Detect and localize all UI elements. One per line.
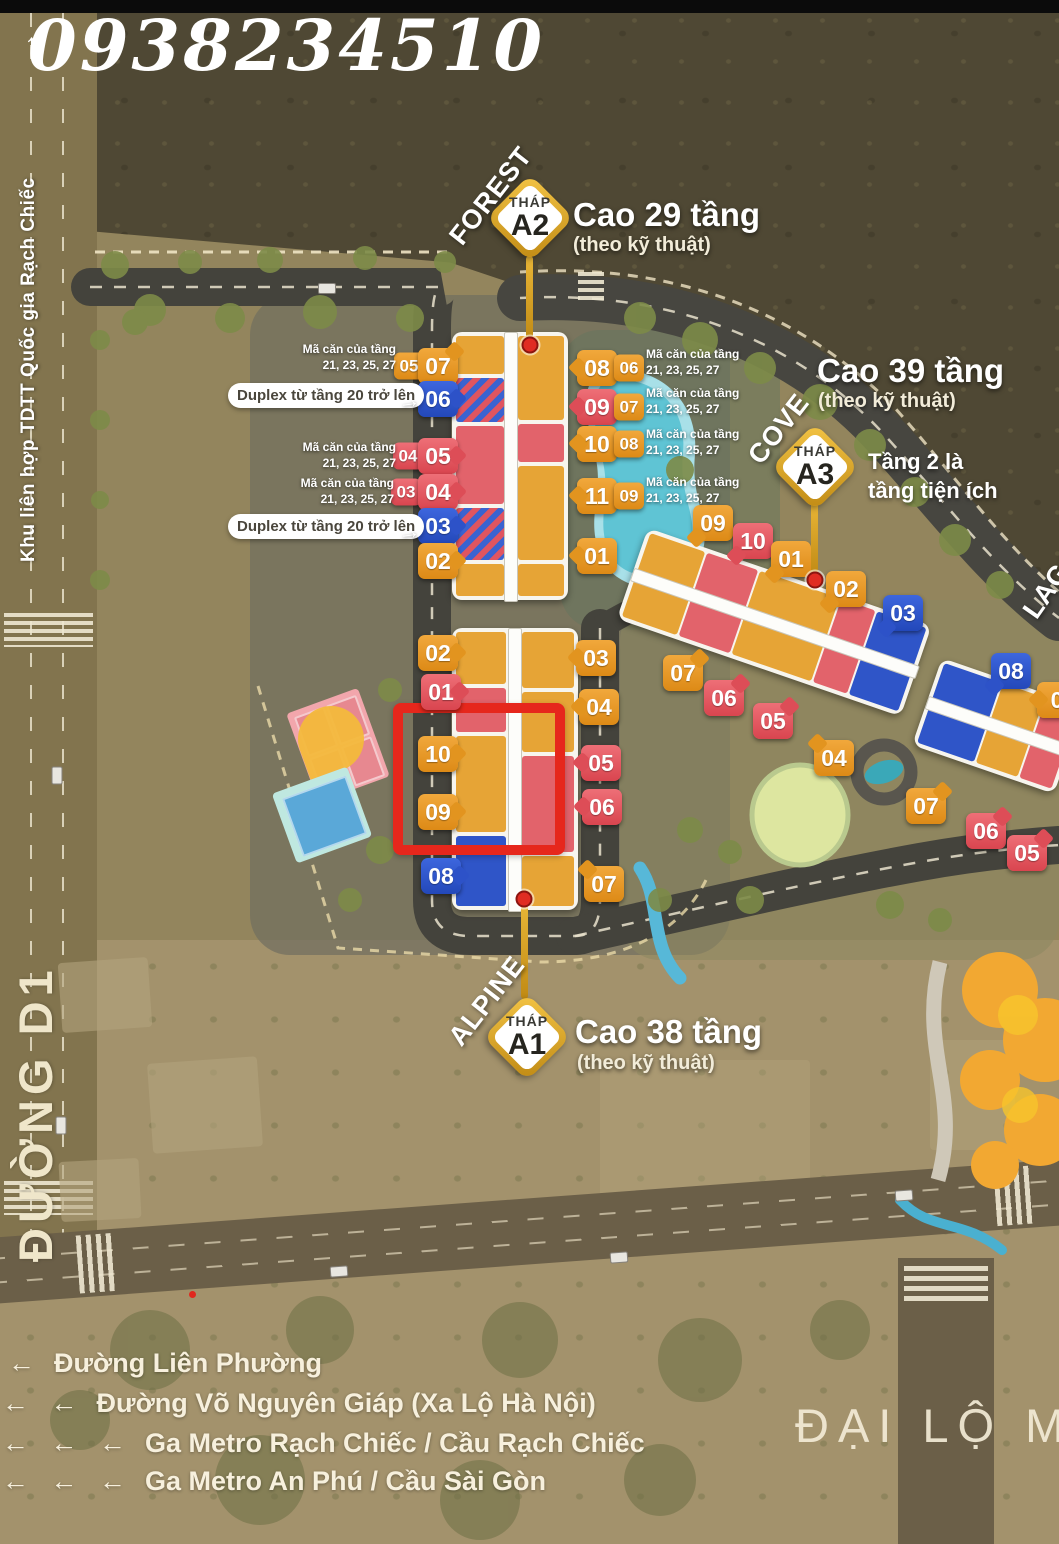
- badge-number: 01: [584, 543, 610, 570]
- badge-number: 08: [428, 863, 454, 890]
- badge-number: 07: [425, 353, 451, 380]
- pin-code-label: A1: [506, 1030, 548, 1060]
- legend-row: ← ←Đường Võ Nguyên Giáp (Xa Lộ Hà Nội): [2, 1388, 596, 1419]
- badge-number: 07: [591, 871, 617, 898]
- unit-badge-02: 02: [418, 635, 458, 671]
- badge-number: 01: [428, 679, 454, 706]
- unit-badge-06: 06: [418, 381, 458, 417]
- unit-badge-05: 05: [418, 438, 458, 474]
- badge-number: 11: [585, 483, 609, 510]
- unit-badge-04: 04: [814, 740, 854, 776]
- badge-number: 10: [425, 741, 451, 768]
- pin-stem-a1: [521, 903, 528, 999]
- badge-number: 04: [425, 479, 451, 506]
- badge-number: 01: [778, 546, 804, 573]
- tower-a2-building: [452, 332, 568, 600]
- legend-arrows-icon: ←: [8, 1348, 42, 1378]
- badge-number: 05: [760, 708, 786, 735]
- badge-number: 02: [425, 640, 451, 667]
- masterplan-map: 0507060405030403020806090710081109010201…: [0, 0, 1059, 1544]
- unit-badge-08: 08: [421, 858, 461, 894]
- duplex-note-pill: Duplex từ tầng 20 trở lên: [228, 514, 424, 539]
- badge-number: 10: [740, 528, 766, 555]
- ma-can-line: Mã căn của tầng: [303, 342, 396, 358]
- ma-can-line: Mã căn của tầng: [646, 475, 739, 491]
- badge-number: 08: [620, 434, 639, 454]
- tower-pin-a3-text: THÁP A3: [794, 444, 836, 490]
- pin-dot-a3: [807, 572, 824, 589]
- badge-number: 05: [588, 750, 614, 777]
- unit-badge-07: 07: [906, 788, 946, 824]
- phone-watermark: 0938234510: [28, 4, 545, 87]
- ma-can-line: Mã căn của tầng: [301, 476, 394, 492]
- unit-badge-07: 07: [418, 348, 458, 384]
- badge-number: 08: [584, 355, 610, 382]
- unit-badge-03: 03: [576, 640, 616, 676]
- unit-block: [456, 336, 504, 374]
- badge-number: 09: [700, 510, 726, 537]
- legend-arrows-icon: ← ← ←: [2, 1466, 133, 1496]
- legend-row: ←Đường Liên Phường: [8, 1348, 322, 1379]
- legend-text: Đường Liên Phường: [54, 1348, 322, 1378]
- unit-badge-08: 08: [991, 653, 1031, 689]
- badge-number: 05: [400, 356, 419, 376]
- ma-can-line: Mã căn của tầng: [646, 347, 739, 363]
- tower-pin-a1-text: THÁP A1: [506, 1014, 548, 1060]
- ma-can-line: 21, 23, 25, 27: [646, 491, 739, 507]
- badge-number: 04: [586, 694, 612, 721]
- duplex-block: [456, 508, 504, 560]
- badge-number: 09: [425, 799, 451, 826]
- badge-number: 02: [833, 576, 859, 603]
- unit-badge-06: 06: [614, 355, 644, 382]
- badge-number: 06: [620, 358, 639, 378]
- sports-complex-label: Khu liên hợp TDTT Quốc gia Rạch Chiếc: [18, 177, 40, 562]
- unit-badge-0: 0: [1037, 682, 1059, 718]
- unit-badge-08: 08: [614, 431, 644, 458]
- a3-amenity-line1: Tầng 2 là: [868, 448, 998, 477]
- badge-number: 03: [425, 513, 451, 540]
- unit-badge-10: 10: [577, 426, 617, 462]
- ma-can-note: Mã căn của tầng21, 23, 25, 27: [646, 347, 739, 378]
- legend-row: ← ← ←Ga Metro Rạch Chiếc / Cầu Rạch Chiế…: [2, 1428, 645, 1459]
- badge-number: 07: [620, 397, 639, 417]
- unit-badge-01: 01: [577, 538, 617, 574]
- unit-badge-04: 04: [418, 474, 458, 510]
- avenue-label: ĐẠI LỘ MA: [795, 1398, 1059, 1453]
- unit-badge-05: 05: [753, 703, 793, 739]
- ma-can-note: Mã căn của tầng21, 23, 25, 27: [303, 342, 396, 373]
- badge-number: 0: [1051, 687, 1059, 714]
- ma-can-line: 21, 23, 25, 27: [646, 402, 739, 418]
- badge-number: 06: [425, 386, 451, 413]
- badge-number: 09: [584, 394, 610, 421]
- car: [318, 283, 336, 294]
- unit-badge-10: 10: [418, 736, 458, 772]
- badge-number: 10: [584, 431, 610, 458]
- unit-badge-07: 07: [663, 655, 703, 691]
- unit-badge-06: 06: [582, 789, 622, 825]
- unit-badge-05: 05: [581, 745, 621, 781]
- duplex-arrow-icon: →: [396, 518, 421, 547]
- ma-can-line: Mã căn của tầng: [646, 386, 739, 402]
- a3-amenity-line2: tầng tiện ích: [868, 477, 998, 506]
- ma-can-line: Mã căn của tầng: [646, 427, 739, 443]
- legend-arrows-icon: ← ←: [2, 1388, 85, 1418]
- badge-number: 05: [1014, 840, 1040, 867]
- height-label-a1: Cao 38 tầng: [575, 1013, 762, 1051]
- ma-can-note: Mã căn của tầng21, 23, 25, 27: [301, 476, 394, 507]
- unit-badge-09: 09: [693, 505, 733, 541]
- unit-badge-02: 02: [826, 571, 866, 607]
- badge-number: 06: [973, 818, 999, 845]
- pin-code-label: A2: [509, 211, 551, 241]
- pin-stem-a2: [526, 256, 533, 342]
- ma-can-line: 21, 23, 25, 27: [303, 456, 396, 472]
- car: [895, 1189, 914, 1201]
- unit-badge-05: 05: [1007, 835, 1047, 871]
- a3-amenity-note: Tầng 2 là tầng tiện ích: [868, 448, 998, 505]
- pin-thap-label: THÁP: [794, 444, 836, 458]
- badge-number: 06: [589, 794, 615, 821]
- badge-number: 05: [425, 443, 451, 470]
- height-note-a1: (theo kỹ thuật): [577, 1052, 715, 1075]
- duplex-note-pill: Duplex từ tầng 20 trở lên: [228, 383, 424, 408]
- pin-dot-a1: [516, 891, 533, 908]
- unit-badge-09: 09: [614, 483, 644, 510]
- ma-can-note: Mã căn của tầng21, 23, 25, 27: [646, 386, 739, 417]
- ma-can-line: 21, 23, 25, 27: [303, 358, 396, 374]
- badge-number: 03: [583, 645, 609, 672]
- ma-can-line: Mã căn của tầng: [303, 440, 396, 456]
- badge-number: 07: [670, 660, 696, 687]
- ma-can-note: Mã căn của tầng21, 23, 25, 27: [303, 440, 396, 471]
- legend-row: ← ← ←Ga Metro An Phú / Cầu Sài Gòn: [2, 1466, 546, 1497]
- unit-badge-01: 01: [771, 541, 811, 577]
- ma-can-line: 21, 23, 25, 27: [301, 492, 394, 508]
- unit-badge-11: 11: [577, 478, 617, 514]
- pin-stem-a3: [811, 502, 818, 576]
- car: [330, 1265, 349, 1277]
- unit-badge-08: 08: [577, 350, 617, 386]
- unit-badge-03: 03: [883, 595, 923, 631]
- legend-text: Đường Võ Nguyên Giáp (Xa Lộ Hà Nội): [97, 1388, 596, 1418]
- ma-can-line: 21, 23, 25, 27: [646, 363, 739, 379]
- pin-dot-a2: [522, 337, 539, 354]
- legend-text: Ga Metro An Phú / Cầu Sài Gòn: [145, 1466, 546, 1496]
- unit-badge-09: 09: [577, 389, 617, 425]
- unit-badge-09: 09: [418, 794, 458, 830]
- unit-block: [456, 632, 506, 684]
- legend-arrows-icon: ← ← ←: [2, 1428, 133, 1458]
- badge-number: 06: [711, 685, 737, 712]
- pin-thap-label: THÁP: [506, 1014, 548, 1028]
- height-note-a3: (theo kỹ thuật): [818, 390, 956, 413]
- unit-badge-01: 01: [421, 674, 461, 710]
- height-label-a2: Cao 29 tầng: [573, 196, 760, 234]
- unit-badge-02: 02: [418, 543, 458, 579]
- height-label-a3: Cao 39 tầng: [817, 352, 1004, 390]
- building-core: [504, 332, 518, 602]
- ma-can-note: Mã căn của tầng21, 23, 25, 27: [646, 475, 739, 506]
- unit-block: [518, 466, 564, 560]
- badge-number: 04: [399, 446, 418, 466]
- badge-number: 03: [397, 482, 416, 502]
- height-note-a2: (theo kỹ thuật): [573, 234, 711, 257]
- unit-block: [518, 424, 564, 462]
- pin-thap-label: THÁP: [509, 195, 551, 209]
- highlighted-unit-10-outline: [393, 703, 565, 855]
- unit-block: [522, 632, 574, 688]
- ma-can-line: 21, 23, 25, 27: [646, 443, 739, 459]
- unit-badge-03: 03: [391, 479, 421, 506]
- unit-badge-07: 07: [584, 866, 624, 902]
- pin-code-label: A3: [794, 460, 836, 490]
- badge-number: 07: [913, 793, 939, 820]
- badge-number: 08: [998, 658, 1024, 685]
- unit-block: [518, 564, 564, 596]
- badge-number: 03: [890, 600, 916, 627]
- car: [610, 1251, 629, 1263]
- unit-block: [456, 564, 504, 596]
- badge-number: 09: [620, 486, 639, 506]
- duplex-arrow-icon: →: [396, 387, 421, 416]
- unit-badge-06: 06: [704, 680, 744, 716]
- ma-can-note: Mã căn của tầng21, 23, 25, 27: [646, 427, 739, 458]
- unit-badge-06: 06: [966, 813, 1006, 849]
- unit-badge-10: 10: [733, 523, 773, 559]
- road-d1-label: ĐƯỜNG D1: [8, 965, 63, 1262]
- unit-badge-07: 07: [614, 394, 644, 421]
- car: [52, 767, 63, 785]
- legend-text: Ga Metro Rạch Chiếc / Cầu Rạch Chiếc: [145, 1428, 645, 1458]
- tower-pin-a2-text: THÁP A2: [509, 195, 551, 241]
- badge-number: 04: [821, 745, 847, 772]
- badge-number: 02: [425, 548, 451, 575]
- unit-badge-04: 04: [579, 689, 619, 725]
